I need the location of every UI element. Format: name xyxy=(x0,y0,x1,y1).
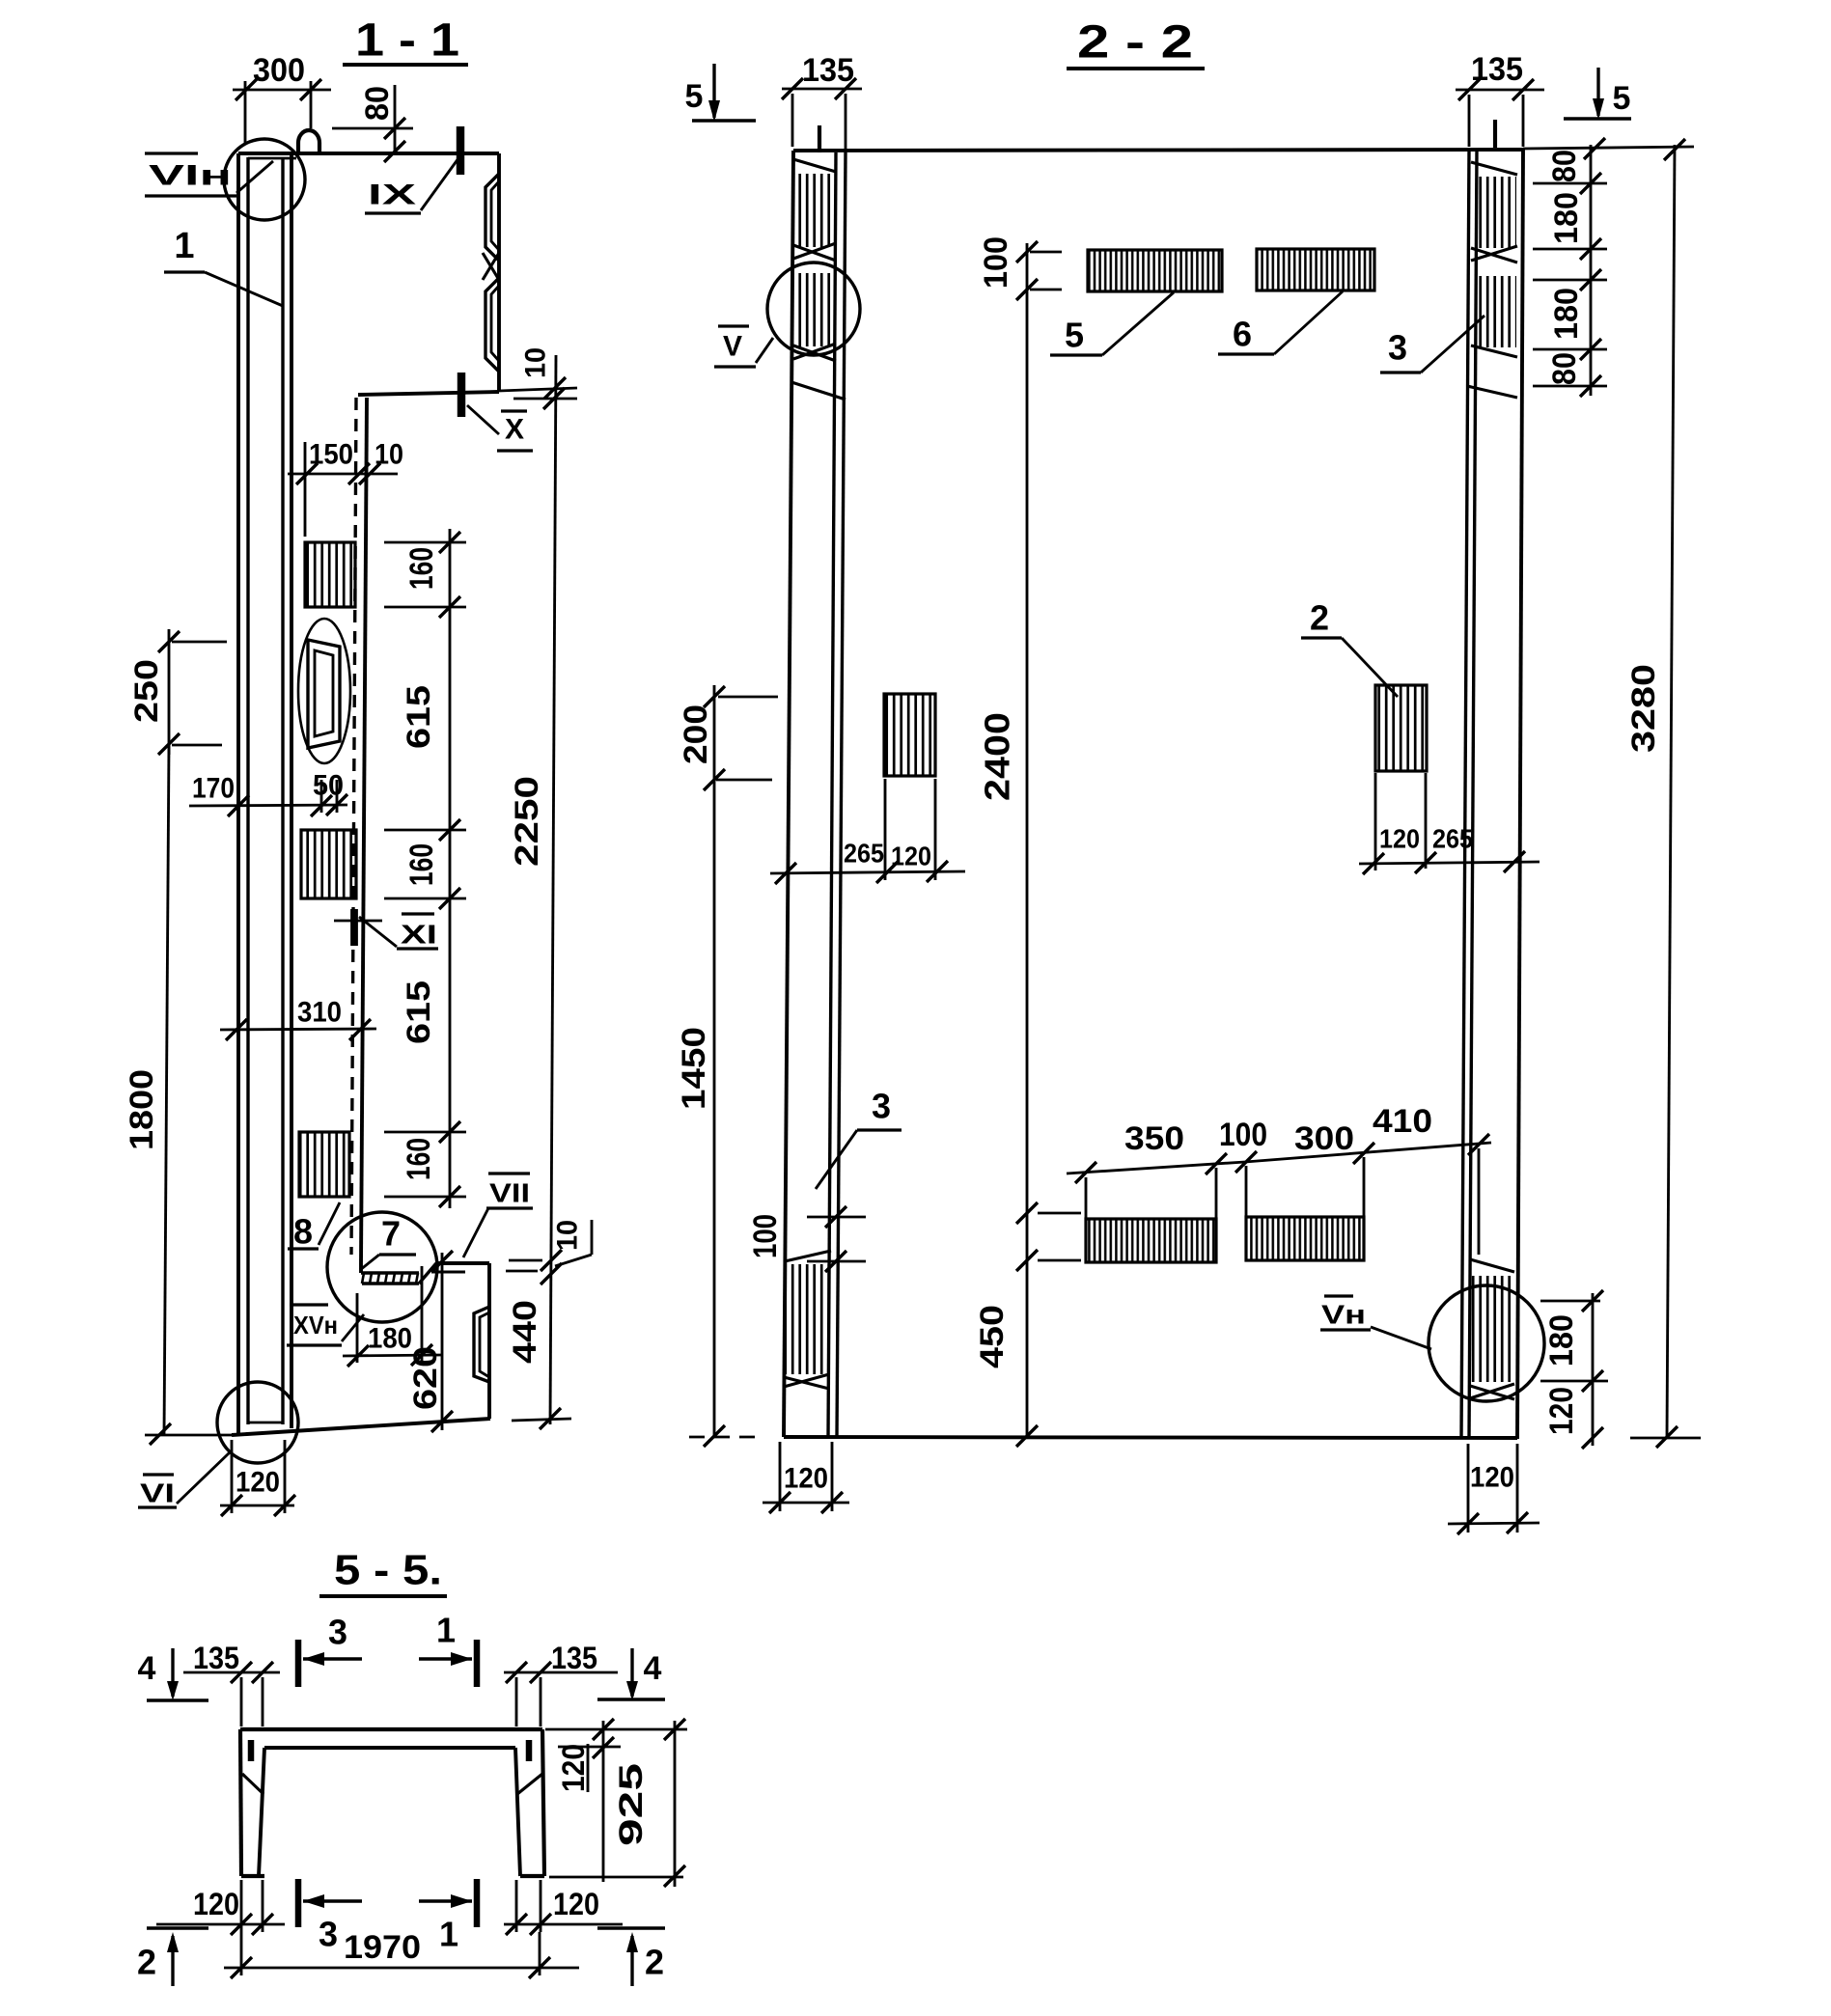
svg-text:100: 100 xyxy=(747,1214,784,1258)
svg-text:265: 265 xyxy=(1432,824,1473,854)
svg-text:4: 4 xyxy=(644,1650,662,1687)
svg-text:120: 120 xyxy=(553,1887,599,1921)
svg-text:925: 925 xyxy=(613,1763,650,1846)
svg-text:2: 2 xyxy=(137,1943,156,1982)
svg-text:120: 120 xyxy=(556,1744,591,1792)
svg-text:3: 3 xyxy=(328,1613,347,1652)
svg-text:8: 8 xyxy=(293,1212,313,1252)
svg-text:5: 5 xyxy=(1065,316,1084,355)
svg-text:2250: 2250 xyxy=(509,776,545,867)
svg-text:615: 615 xyxy=(401,685,437,749)
svg-text:7: 7 xyxy=(381,1214,401,1254)
svg-text:Vн: Vн xyxy=(1321,1300,1366,1330)
svg-text:100: 100 xyxy=(1219,1117,1267,1153)
svg-text:160: 160 xyxy=(401,1138,437,1180)
svg-text:300: 300 xyxy=(253,52,305,89)
svg-text:615: 615 xyxy=(401,980,437,1044)
svg-text:440: 440 xyxy=(507,1300,543,1364)
svg-text:120: 120 xyxy=(784,1463,828,1495)
svg-text:XI: XI xyxy=(401,920,437,950)
svg-text:200: 200 xyxy=(678,704,714,764)
svg-text:310: 310 xyxy=(297,997,342,1029)
svg-text:VIн: VIн xyxy=(149,160,232,192)
svg-text:410: 410 xyxy=(1373,1103,1432,1140)
svg-text:VII: VII xyxy=(489,1178,530,1208)
svg-text:1: 1 xyxy=(439,1915,458,1954)
svg-text:180: 180 xyxy=(1543,1314,1580,1367)
svg-text:XVн: XVн xyxy=(293,1311,338,1339)
svg-text:50: 50 xyxy=(313,770,344,802)
svg-text:4: 4 xyxy=(138,1650,156,1687)
svg-text:1 - 1: 1 - 1 xyxy=(355,15,459,67)
svg-text:250: 250 xyxy=(128,659,165,723)
svg-text:120: 120 xyxy=(1379,824,1420,854)
svg-text:160: 160 xyxy=(403,843,440,886)
svg-text:120: 120 xyxy=(1470,1462,1514,1494)
svg-text:VI: VI xyxy=(140,1478,175,1508)
svg-text:1: 1 xyxy=(174,226,194,266)
svg-text:1800: 1800 xyxy=(124,1069,160,1150)
svg-text:V: V xyxy=(723,331,742,363)
svg-text:3: 3 xyxy=(872,1087,891,1126)
svg-text:450: 450 xyxy=(974,1305,1011,1368)
svg-text:135: 135 xyxy=(193,1641,239,1675)
svg-text:120: 120 xyxy=(891,842,931,871)
svg-text:180: 180 xyxy=(1548,288,1585,340)
svg-text:5 - 5.: 5 - 5. xyxy=(334,1547,442,1594)
svg-text:IX: IX xyxy=(368,180,416,211)
svg-text:120: 120 xyxy=(1543,1387,1580,1435)
svg-text:3: 3 xyxy=(1388,328,1407,368)
svg-text:300: 300 xyxy=(1294,1120,1354,1157)
svg-text:170: 170 xyxy=(192,773,235,805)
svg-text:135: 135 xyxy=(802,52,854,89)
svg-text:3280: 3280 xyxy=(1625,664,1662,753)
svg-text:5: 5 xyxy=(685,78,704,115)
svg-text:5: 5 xyxy=(1613,80,1631,117)
svg-text:265: 265 xyxy=(844,839,884,869)
svg-text:120: 120 xyxy=(236,1467,280,1499)
svg-text:X: X xyxy=(505,414,524,446)
svg-text:1: 1 xyxy=(436,1611,456,1650)
svg-text:2: 2 xyxy=(1310,598,1329,638)
svg-text:2400: 2400 xyxy=(978,712,1017,801)
svg-text:2: 2 xyxy=(645,1943,664,1982)
svg-text:350: 350 xyxy=(1124,1120,1184,1157)
svg-text:6: 6 xyxy=(1233,315,1252,354)
svg-text:135: 135 xyxy=(551,1641,597,1675)
svg-text:10: 10 xyxy=(520,347,552,378)
svg-text:80: 80 xyxy=(1546,352,1583,385)
svg-text:180: 180 xyxy=(1548,192,1585,244)
svg-text:2 - 2: 2 - 2 xyxy=(1077,17,1193,69)
svg-text:80: 80 xyxy=(359,86,396,121)
svg-text:120: 120 xyxy=(193,1887,239,1921)
svg-text:3: 3 xyxy=(319,1915,338,1954)
svg-text:180: 180 xyxy=(368,1323,412,1355)
svg-text:1450: 1450 xyxy=(676,1027,712,1110)
svg-text:80: 80 xyxy=(1546,150,1583,182)
svg-text:1970: 1970 xyxy=(344,1929,421,1966)
svg-text:100: 100 xyxy=(978,236,1014,289)
svg-text:160: 160 xyxy=(403,547,440,590)
svg-text:10: 10 xyxy=(552,1220,584,1251)
